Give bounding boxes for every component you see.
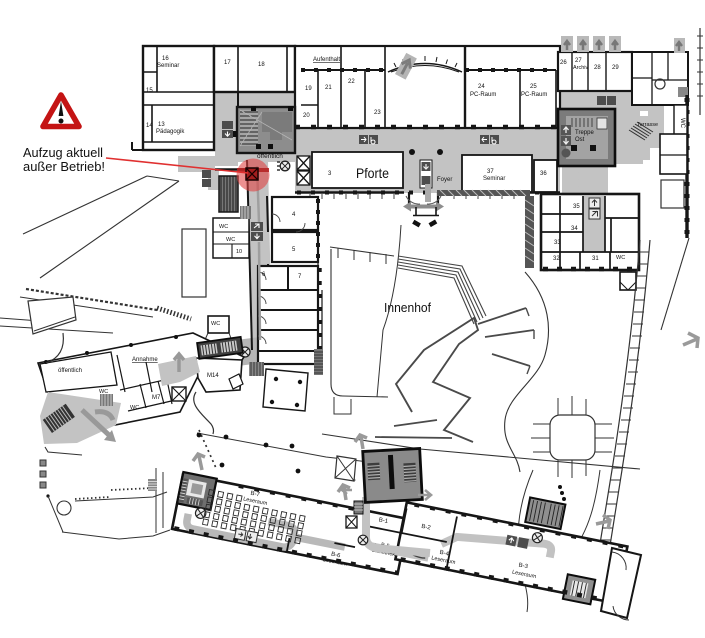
svg-text:WC: WC [616,255,625,261]
svg-text:35: 35 [573,204,580,210]
svg-text:19: 19 [305,86,312,92]
svg-text:14: 14 [146,123,153,129]
svg-text:13: 13 [158,122,165,128]
svg-text:37: 37 [487,169,494,175]
svg-text:27: 27 [575,58,582,64]
svg-text:Archiv: Archiv [573,65,589,71]
svg-text:34: 34 [571,226,578,232]
svg-text:Annahme: Annahme [132,357,158,363]
svg-text:15: 15 [146,88,153,94]
svg-text:PC-Raum: PC-Raum [521,92,547,98]
svg-text:21: 21 [325,85,332,91]
svg-text:öffentlich: öffentlich [58,368,82,374]
svg-text:18: 18 [258,62,265,68]
svg-text:Ost: Ost [575,137,585,143]
svg-text:32: 32 [553,256,560,262]
svg-text:31: 31 [592,256,599,262]
svg-text:M14: M14 [207,373,219,379]
svg-text:PC-Raum: PC-Raum [470,92,496,98]
svg-text:10: 10 [236,249,242,255]
svg-text:20: 20 [303,113,310,119]
svg-text:29: 29 [612,65,619,71]
svg-text:23: 23 [374,110,381,116]
svg-text:Seminar: Seminar [483,176,505,182]
svg-text:22: 22 [348,79,355,85]
svg-text:Treppe: Treppe [575,130,594,136]
svg-text:24: 24 [478,84,485,90]
svg-text:WC: WC [219,224,228,230]
svg-text:Seminar: Seminar [157,63,179,69]
svg-text:33: 33 [554,240,561,246]
svg-text:WC: WC [679,118,685,129]
svg-text:öffentlich: öffentlich [257,153,283,160]
svg-text:WC: WC [211,321,220,327]
svg-text:Pädagogik: Pädagogik [156,129,185,135]
svg-text:25: 25 [530,84,537,90]
svg-text:28: 28 [594,65,601,71]
svg-text:16: 16 [162,56,169,62]
svg-text:Aufzug aktuell: Aufzug aktuell [23,145,103,160]
svg-text:WC: WC [226,237,235,243]
svg-text:Aufenthalt: Aufenthalt [313,57,340,63]
svg-text:26: 26 [560,60,567,66]
svg-text:Pforte: Pforte [356,165,389,181]
svg-text:M7: M7 [152,395,161,401]
svg-text:Foyer: Foyer [437,177,452,183]
svg-text:36: 36 [540,171,547,177]
svg-text:17: 17 [224,60,231,66]
svg-text:außer Betrieb!: außer Betrieb! [23,159,105,174]
